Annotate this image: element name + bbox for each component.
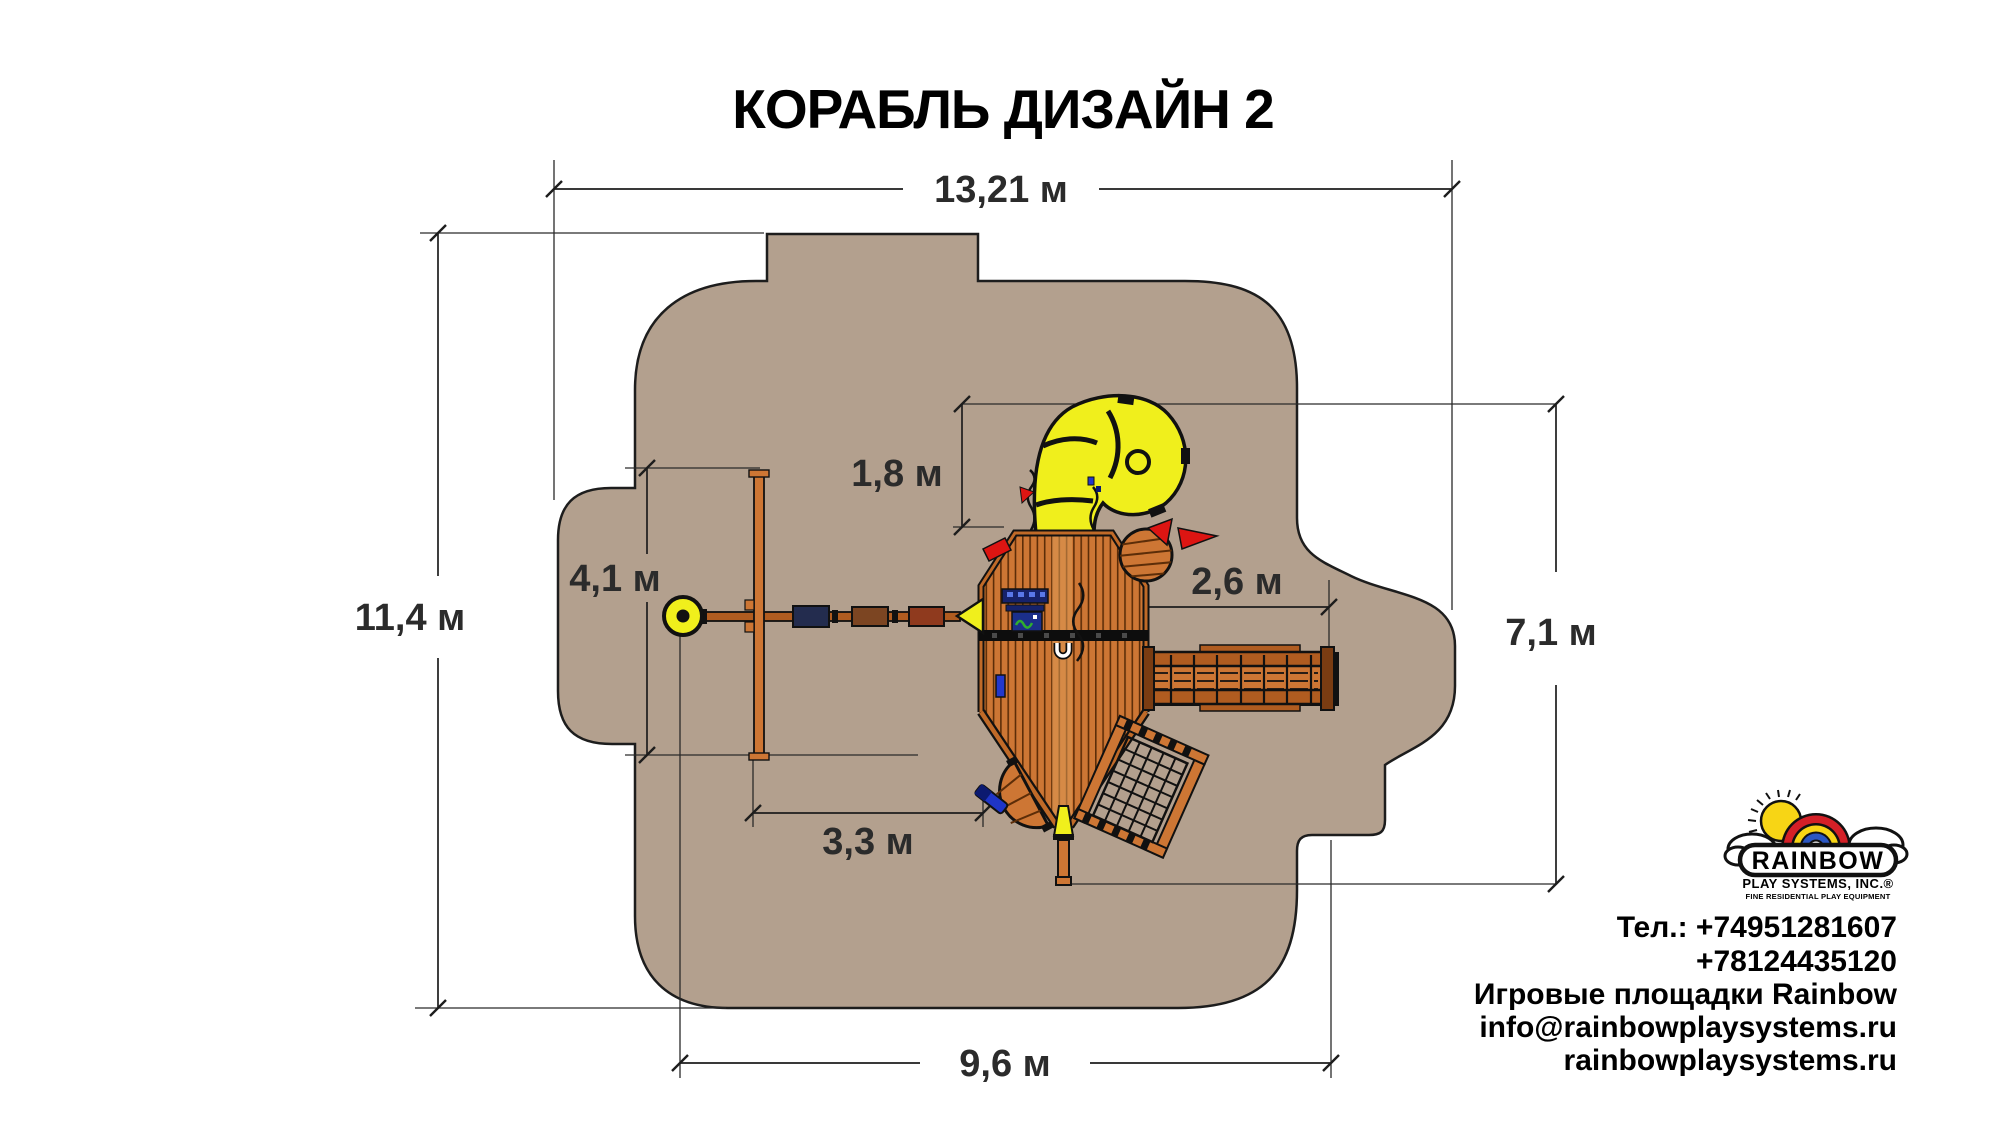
rainbow-logo: RAINBOW PLAY SYSTEMS, INC.® FINE RESIDEN… (1725, 790, 1907, 901)
dim-label-bottom-width: 9,6 м (959, 1043, 1051, 1085)
logo-tagline-text: FINE RESIDENTIAL PLAY EQUIPMENT (1746, 892, 1891, 901)
dim-label-right-height: 7,1 м (1505, 612, 1597, 654)
dim-label-slide-zone: 1,8 м (851, 453, 943, 495)
swing-seat-1 (793, 606, 829, 627)
site-plan-svg: 13,21 м 11,4 м 4,1 м 1,8 м 2,6 м 7,1 м 3… (0, 0, 2000, 1134)
rope-bridge (1143, 645, 1339, 711)
dim-label-swing-frame: 4,1 м (569, 558, 661, 600)
contact-block: Тел.: +74951281607 +78124435120 Игровые … (1474, 911, 1898, 1077)
swing-a-frame (754, 473, 764, 757)
dim-label-bridge: 2,6 м (1191, 561, 1283, 603)
contact-phone-2: +78124435120 (1696, 945, 1897, 978)
logo-brand-text: RAINBOW (1752, 847, 1885, 875)
blue-periscope (996, 675, 1005, 697)
dim-label-total-width: 13,21 м (934, 169, 1068, 211)
swing-seat-3 (909, 607, 944, 626)
swing-seat-2 (852, 607, 888, 626)
contact-website: rainbowplaysystems.ru (1564, 1044, 1897, 1077)
contact-phone-1: Тел.: +74951281607 (1617, 911, 1897, 944)
dim-label-bow-offset: 3,3 м (822, 821, 914, 863)
dim-label-total-height: 11,4 м (355, 597, 466, 639)
logo-subtitle-text: PLAY SYSTEMS, INC.® (1742, 876, 1893, 891)
contact-company: Игровые площадки Rainbow (1474, 978, 1898, 1011)
contact-email: info@rainbowplaysystems.ru (1479, 1011, 1897, 1044)
page-title: КОРАБЛЬ ДИЗАЙН 2 (732, 77, 1274, 140)
playground-plan-page: 13,21 м 11,4 м 4,1 м 1,8 м 2,6 м 7,1 м 3… (0, 0, 2000, 1134)
